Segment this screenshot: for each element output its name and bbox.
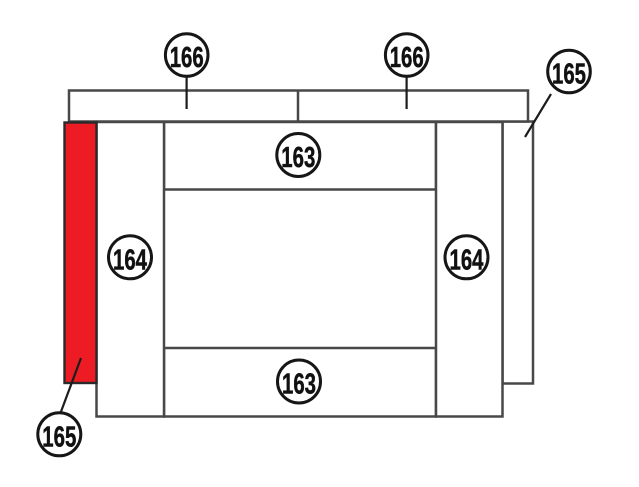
svg-text:166: 166 [170,42,204,74]
svg-text:164: 164 [113,244,147,276]
svg-text:163: 163 [282,369,316,401]
svg-text:166: 166 [390,42,424,74]
svg-text:165: 165 [552,59,586,91]
svg-text:164: 164 [450,244,484,276]
svg-text:165: 165 [42,421,76,453]
svg-text:163: 163 [281,142,315,174]
